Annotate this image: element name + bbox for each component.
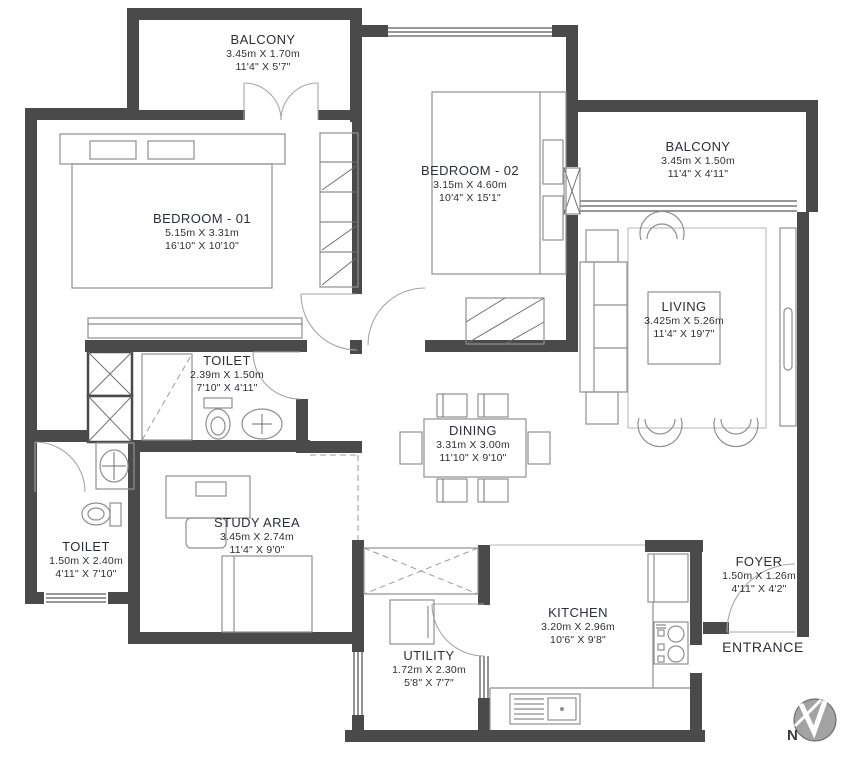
entrance-label: ENTRANCE [708, 639, 818, 655]
room-label-dining: DINING 3.31m X 3.00m 11'10" X 9'10" [403, 424, 543, 465]
room-label-kitchen: KITCHEN 3.20m X 2.96m 10'6" X 9'8" [508, 606, 648, 647]
room-label-balcony-top-left: BALCONY 3.45m X 1.70m 11'4" X 5'7" [188, 33, 338, 74]
room-label-bedroom-01: BEDROOM - 01 5.15m X 3.31m 16'10" X 10'1… [127, 212, 277, 253]
room-label-study-area: STUDY AREA 3.45m X 2.74m 11'4" X 9'0" [182, 516, 332, 557]
room-label-balcony-top-right: BALCONY 3.45m X 1.50m 11'4" X 4'11" [623, 140, 773, 181]
stove [654, 622, 688, 664]
room-label-toilet-lower: TOILET 1.50m X 2.40m 4'11" X 7'10" [21, 540, 151, 581]
room-label-foyer: FOYER 1.50m X 1.26m 4'11" X 4'2" [699, 555, 819, 596]
room-label-utility: UTILITY 1.72m X 2.30m 5'8" X 7'7" [364, 649, 494, 690]
room-label-toilet-upper: TOILET 2.39m X 1.50m 7'10" X 4'11" [157, 354, 297, 395]
room-label-living: LIVING 3.425m X 5.26m 11'4" X 19'7" [609, 300, 759, 341]
washing-machine [390, 600, 434, 644]
tv-unit [780, 228, 796, 426]
utility-loft-hatch [364, 548, 478, 594]
toilet-upper-wc [204, 398, 232, 439]
fridge [648, 554, 688, 602]
kitchen-sink [510, 694, 580, 724]
floor-plan: BALCONY 3.45m X 1.70m 11'4" X 5'7" BEDRO… [0, 0, 856, 769]
toilet-lower-wc [82, 503, 121, 526]
study-daybed [222, 556, 312, 632]
north-label: N [787, 727, 798, 744]
bedroom-02-wardrobe [466, 298, 544, 344]
toilet-upper-basin [242, 409, 282, 439]
bedroom-01-dresser [88, 318, 302, 338]
walls [25, 8, 818, 742]
room-label-bedroom-02: BEDROOM - 02 3.15m X 4.60m 10'4" X 15'1" [395, 164, 545, 205]
north-arrow-icon [794, 699, 836, 741]
duct-shafts [88, 352, 132, 442]
